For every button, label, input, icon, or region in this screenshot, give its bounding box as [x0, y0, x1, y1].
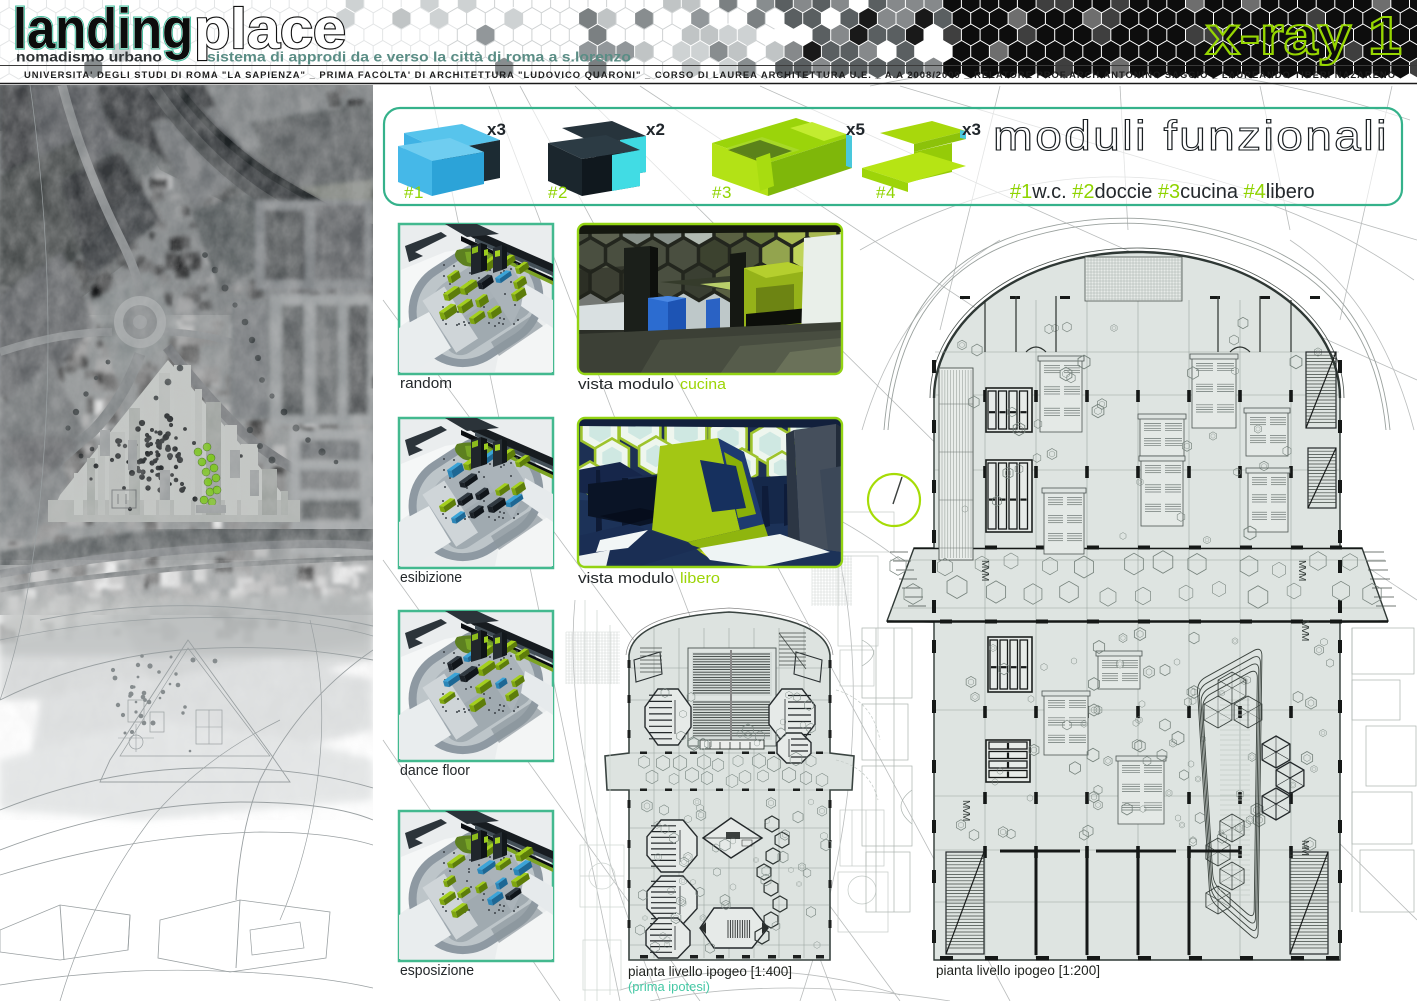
svg-text:#1: #1	[404, 183, 424, 202]
svg-text:esposizione: esposizione	[400, 963, 474, 979]
svg-text:MVM: MVM	[979, 560, 990, 581]
svg-text:(prima ipotesi): (prima ipotesi)	[628, 979, 710, 994]
svg-text:libero: libero	[680, 571, 720, 587]
svg-text:UNIVERSITA' DEGLI STUDI DI ROM: UNIVERSITA' DEGLI STUDI DI ROMA "LA SAPI…	[24, 70, 1396, 81]
svg-text:MVM: MVM	[1296, 560, 1307, 581]
svg-text:nomadismo urbano: nomadismo urbano	[16, 50, 162, 65]
svg-text:vista modulo: vista modulo	[578, 377, 674, 393]
svg-text:dance floor: dance floor	[400, 763, 470, 779]
svg-text:pianta livello ipogeo [1:400]: pianta livello ipogeo [1:400]	[628, 963, 792, 979]
svg-text:x3: x3	[962, 120, 981, 139]
svg-text:x-ray 1: x-ray 1	[1206, 6, 1402, 66]
svg-text:MVM: MVM	[1299, 620, 1310, 641]
svg-text:#3: #3	[712, 183, 732, 202]
svg-text:#4: #4	[876, 183, 896, 202]
svg-text:MVM: MVM	[960, 800, 971, 821]
svg-text:#1w.c. #2doccie #3cucina #4: #1w.c. #2doccie #3cucina #4libero	[1010, 181, 1315, 203]
svg-text:pianta livello ipogeo [1:200]: pianta livello ipogeo [1:200]	[936, 962, 1100, 978]
svg-text:esibizione: esibizione	[400, 570, 462, 586]
svg-text:x5: x5	[846, 120, 865, 139]
svg-text:#2: #2	[548, 183, 568, 202]
svg-text:sistema di approdi da e verso: sistema di approdi da e verso la città d…	[207, 50, 631, 65]
svg-text:cucina: cucina	[680, 377, 727, 393]
svg-text:x3: x3	[487, 120, 506, 139]
svg-text:x2: x2	[646, 120, 665, 139]
svg-text:MM: MM	[1299, 840, 1310, 855]
svg-text:vista modulo: vista modulo	[578, 571, 674, 587]
svg-text:moduli funzionali: moduli funzionali	[993, 112, 1389, 159]
svg-text:random: random	[400, 376, 452, 392]
